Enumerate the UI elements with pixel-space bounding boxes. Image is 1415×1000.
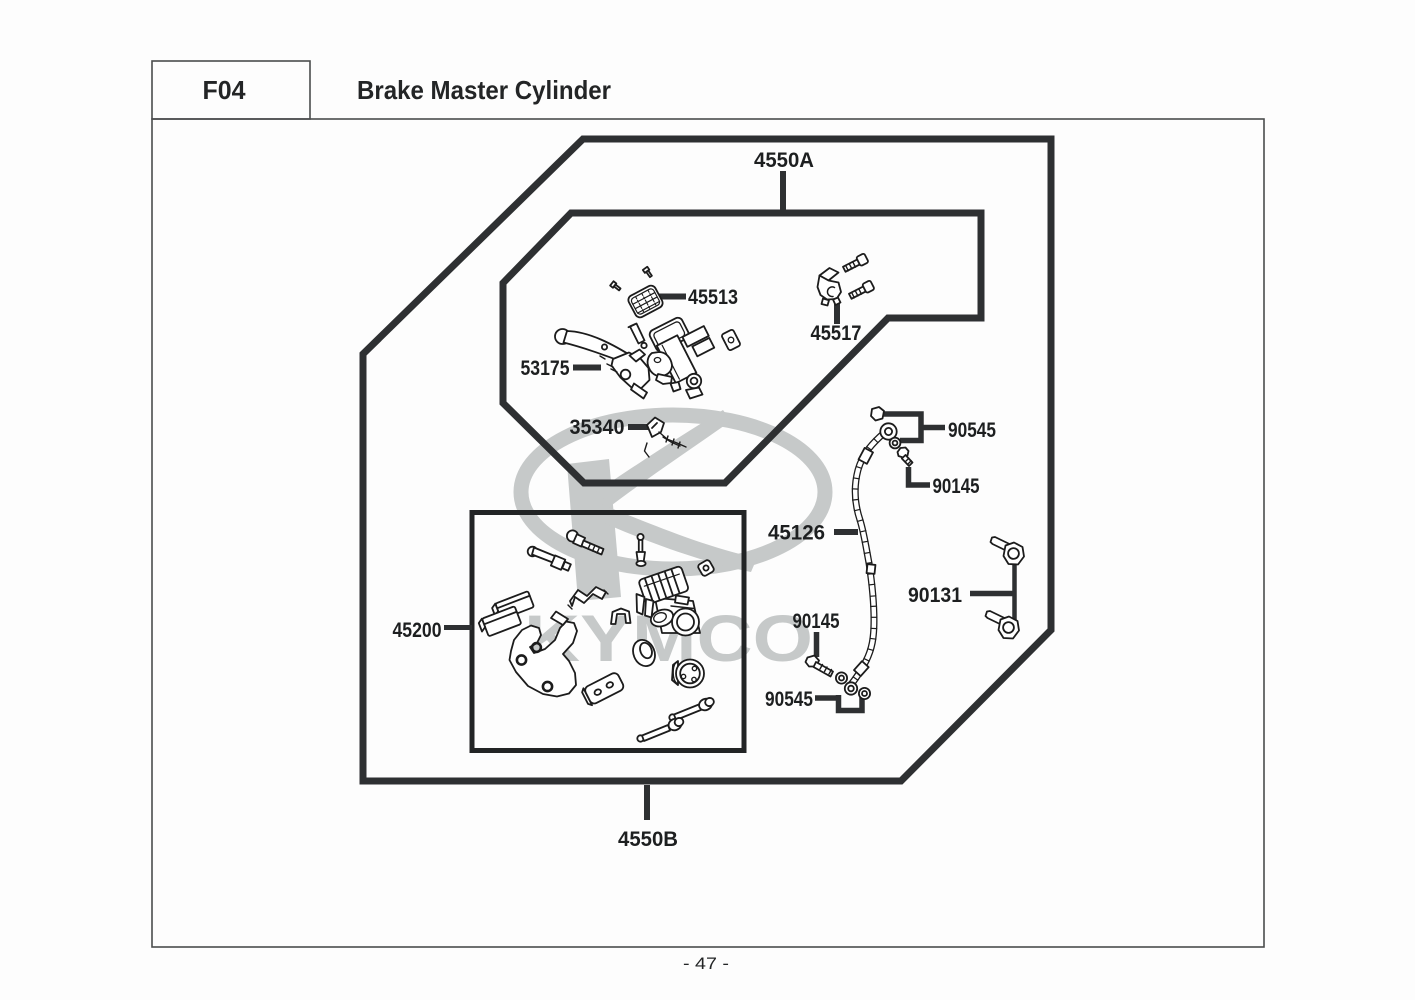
svg-text:53175: 53175 [521,357,570,380]
svg-text:45513: 45513 [688,286,738,309]
svg-text:90545: 90545 [765,688,813,711]
svg-text:4550A: 4550A [754,149,814,172]
svg-text:90145: 90145 [793,610,840,633]
svg-text:90131: 90131 [908,584,962,607]
svg-text:45200: 45200 [393,619,442,642]
svg-text:90545: 90545 [948,419,996,442]
svg-text:Brake Master Cylinder: Brake Master Cylinder [357,75,611,105]
svg-text:90145: 90145 [933,475,980,498]
svg-text:45126: 45126 [768,522,825,545]
svg-text:4550B: 4550B [618,828,678,851]
svg-text:- 47 -: - 47 - [683,954,729,973]
svg-text:F04: F04 [203,75,247,105]
svg-text:45517: 45517 [811,322,862,345]
svg-text:35340: 35340 [570,416,625,439]
